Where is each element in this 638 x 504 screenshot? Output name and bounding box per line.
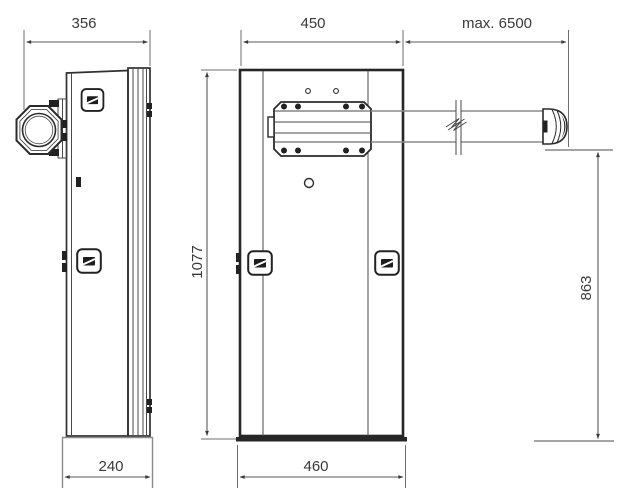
barrier-dimension-diagram: 356 [0, 0, 638, 504]
hinge-mark [147, 407, 152, 413]
dim-label-863: 863 [578, 275, 595, 300]
top-screw-hole [334, 89, 339, 94]
side-view: 356 [17, 15, 154, 488]
base-plate [236, 437, 407, 442]
dim-label-356: 356 [71, 15, 96, 32]
flange-bolt [343, 148, 349, 154]
release-hole [305, 179, 314, 188]
dimension-side-bottom-width: 240 [65, 458, 150, 477]
front-view: 450 max. 6500 [189, 15, 614, 488]
dim-label-1077: 1077 [189, 245, 206, 278]
dim-label-max-6500: max. 6500 [462, 15, 532, 32]
door-latch-mark [76, 177, 81, 187]
boom-arm [371, 100, 567, 155]
hinge-mark [147, 111, 152, 117]
dimension-boom-height: 863 [534, 150, 614, 441]
dim-label-240: 240 [98, 458, 123, 475]
flange-tab [268, 117, 274, 137]
break-symbol [446, 100, 467, 155]
boom-flange [268, 102, 371, 156]
flange-bolt [359, 104, 365, 110]
dimension-cabinet-height: 1077 [189, 70, 237, 439]
flange-bolt [295, 104, 301, 110]
boom-socket-circle [23, 114, 56, 147]
lock-icon [82, 89, 104, 111]
flange-bolt [281, 148, 287, 154]
flange-bolt [359, 148, 365, 154]
hinge-mark [236, 265, 240, 274]
dim-label-450: 450 [300, 15, 325, 32]
hinge-mark [62, 251, 67, 260]
dimension-front-bottom-width: 460 [240, 458, 403, 477]
bracket-bolt [49, 100, 59, 107]
flange-bolt [343, 104, 349, 110]
flange-bolt [281, 104, 287, 110]
hinge-mark [62, 263, 67, 272]
lock-icon [248, 251, 272, 275]
lock-icon [375, 251, 399, 275]
boom-end-cap [543, 109, 567, 144]
lock-icon [77, 249, 101, 273]
dimension-front-top-width: 450 [241, 15, 403, 66]
hinge-mark [147, 399, 152, 405]
technical-drawing-page: 356 [0, 0, 638, 504]
side-cabinet [62, 68, 152, 436]
flange-bolt [295, 148, 301, 154]
dim-label-460: 460 [303, 458, 328, 475]
hinge-mark [236, 253, 240, 262]
hinge-mark [147, 103, 152, 109]
top-screw-hole [306, 89, 311, 94]
